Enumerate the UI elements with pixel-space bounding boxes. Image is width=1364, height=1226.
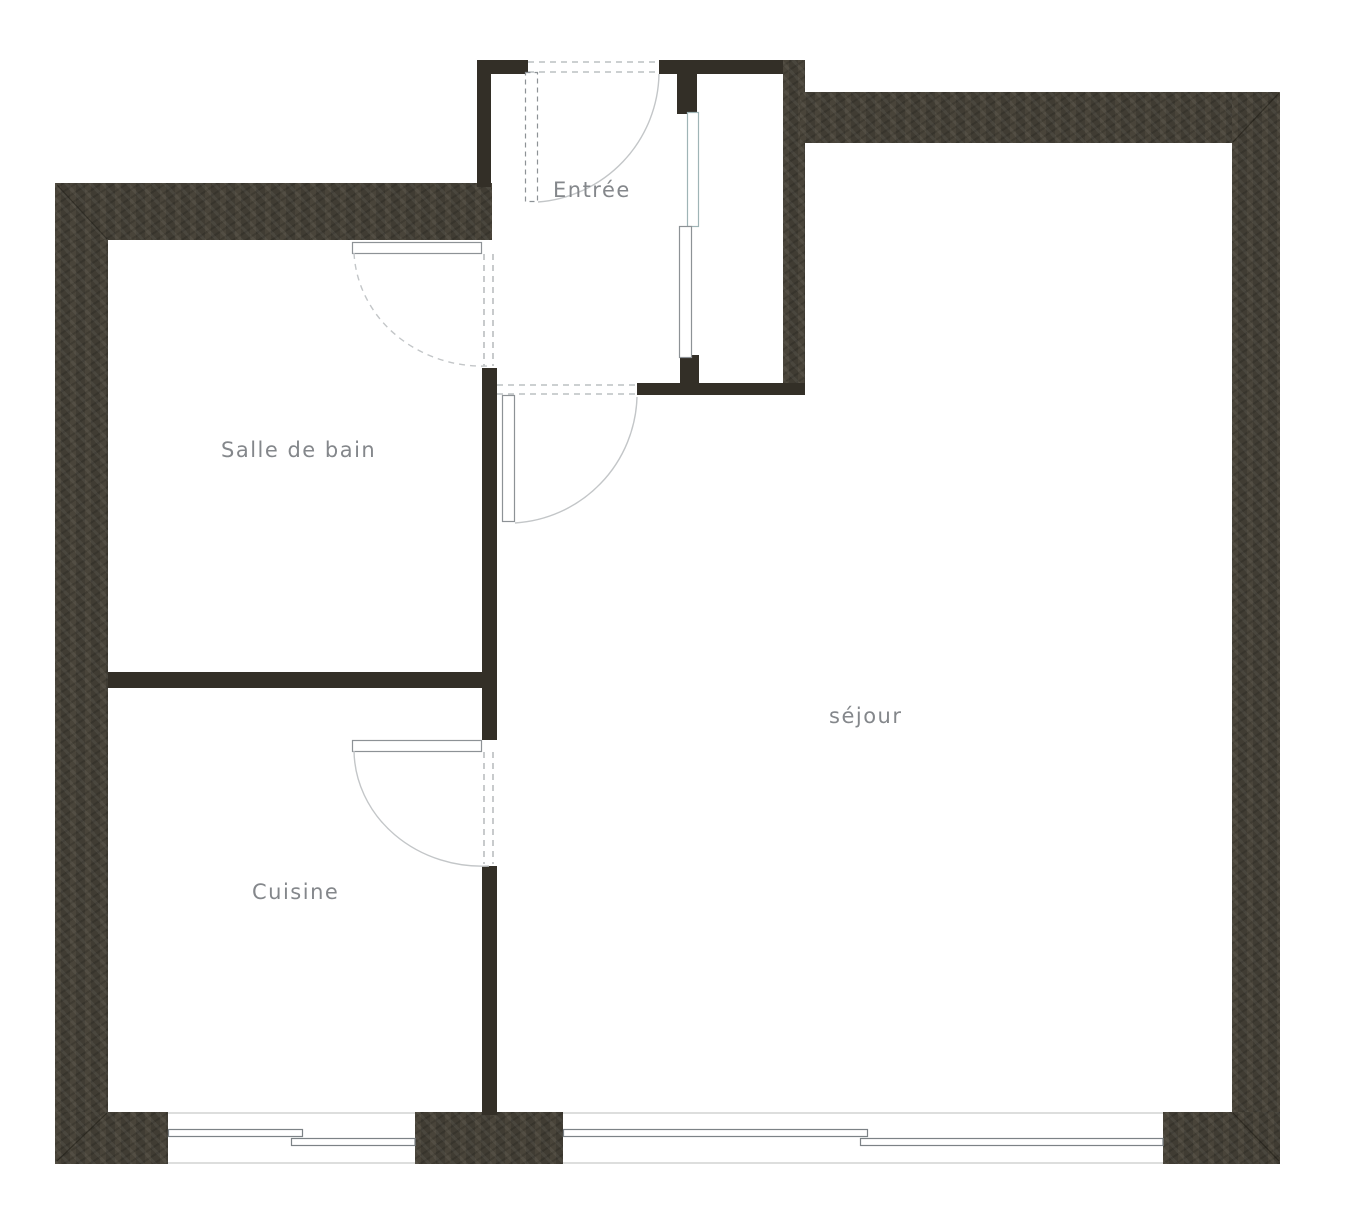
room-label-sejour: séjour: [829, 704, 903, 728]
hall-door-arc: [515, 397, 637, 523]
miter-top-left-corner: [57, 185, 107, 239]
sejour-window-pane-left: [564, 1130, 868, 1137]
kitchen-door-leaf: [353, 741, 482, 752]
entry-door-leaf: [526, 73, 538, 202]
closet-sliding-panel-upper: [688, 113, 699, 227]
miter-bottom-right-corner: [1233, 1113, 1279, 1161]
floor-plan-canvas: Entrée Salle de bain séjour Cuisine: [0, 0, 1364, 1226]
hall-door-leaf: [503, 396, 515, 522]
room-label-cuisine: Cuisine: [252, 880, 339, 904]
room-label-salle-de-bain: Salle de bain: [221, 438, 376, 462]
closet-sliding-panel-lower: [680, 227, 692, 358]
kitchen-door-closed-dashes: [484, 752, 493, 864]
bathroom-door-closed-dashes: [484, 254, 493, 366]
plan-linework: [0, 0, 1364, 1226]
hall-door-opening-dashes: [497, 385, 637, 394]
kitchen-window-pane-right: [292, 1139, 416, 1146]
bathroom-door-leaf: [353, 243, 482, 254]
sejour-window-pane-right: [861, 1139, 1164, 1146]
bathroom-door-arc: [354, 253, 489, 366]
kitchen-window-pane-left: [169, 1130, 303, 1137]
entry-door-opening-dashes: [528, 62, 659, 72]
room-label-entree: Entrée: [553, 178, 631, 202]
miter-top-right-corner: [1233, 93, 1279, 142]
kitchen-door-arc: [354, 751, 489, 866]
miter-bottom-left-corner: [57, 1113, 107, 1161]
